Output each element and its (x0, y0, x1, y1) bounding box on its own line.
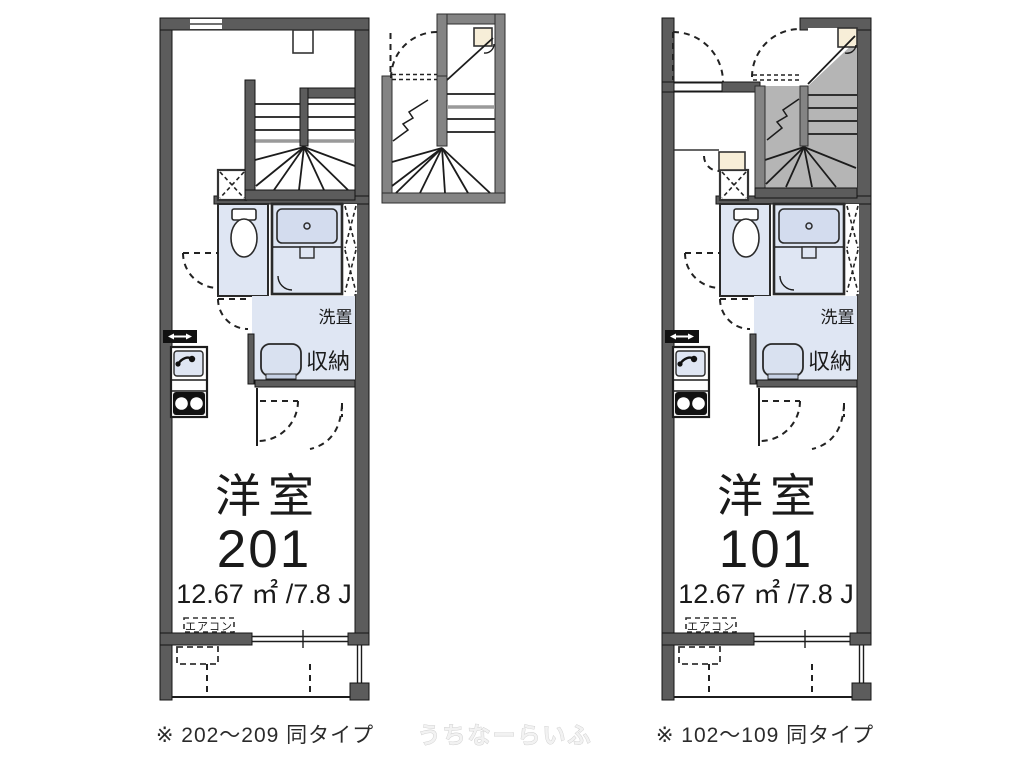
shoe-cabinet-icon (719, 152, 745, 170)
stair-bottom-wall (245, 190, 355, 200)
room-area-201: 12.67 ㎡ /7.8 J (176, 579, 352, 609)
unit-201-staircase (245, 80, 355, 200)
site-watermark: うちなーらいふ (418, 722, 593, 748)
room-number-101: 101 (719, 520, 813, 579)
unit-101: 洗置 収納 洋室 101 12.67 ㎡ /7.8 J エアコン (662, 18, 871, 700)
caption-right: ※ 102～109 同タイプ (656, 724, 874, 747)
stairwell-floor-lower (392, 86, 437, 193)
stair-stub-wall-101 (800, 86, 808, 146)
room-label-201: 洋室 (215, 470, 321, 522)
stair-stub-wall (300, 88, 308, 146)
sw-upper-left-wall (437, 14, 447, 76)
stair-winders (255, 147, 355, 190)
storage-label-101: 収納 (808, 349, 852, 374)
sw-corner-box (474, 28, 492, 46)
stair-floor-gray (765, 86, 857, 193)
stair-top-box (293, 30, 313, 53)
caption-left: ※ 202～209 同タイプ (156, 724, 374, 747)
shoe-cabinet-door-arc (704, 156, 719, 171)
stair-left-wall (245, 80, 255, 200)
sw-entry-door (391, 32, 438, 80)
entrance-door-opening (674, 83, 722, 91)
aircon-label-201: エアコン (185, 621, 233, 633)
floorplan-page: 洗置 収納 洋室 201 12.67 ㎡ /7.8 J エアコン (0, 0, 1018, 774)
laundry-label-201: 洗置 (319, 308, 353, 327)
room-area-101: 12.67 ㎡ /7.8 J (678, 579, 854, 609)
stair-left-wall-101 (755, 86, 765, 198)
stair-bottom-wall-101 (755, 188, 857, 198)
stairwell-diagram (382, 14, 505, 203)
floorplan-canvas: 洗置 収納 洋室 201 12.67 ㎡ /7.8 J エアコン (0, 0, 1018, 774)
top-window-icon (190, 19, 222, 29)
laundry-label-101: 洗置 (821, 308, 855, 327)
aircon-label-101: エアコン (687, 621, 735, 633)
sw-bottom-wall (382, 193, 505, 203)
unit-101-staircase (755, 28, 857, 198)
sw-right-wall (495, 14, 505, 203)
room-label-101: 洋室 (717, 470, 823, 522)
room-number-201: 201 (217, 520, 311, 579)
storage-label-201: 収納 (306, 349, 350, 374)
sw-left-wall (382, 76, 392, 203)
unit-201: 洗置 収納 洋室 201 12.67 ㎡ /7.8 J エアコン (160, 18, 369, 700)
sw-stub-wall (437, 76, 447, 146)
entrance-door-arcs (673, 29, 800, 82)
